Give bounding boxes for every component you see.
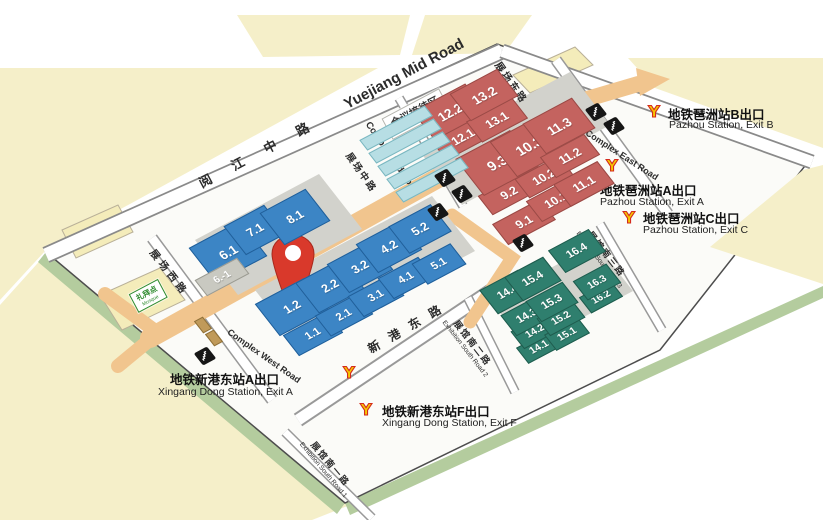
metro-exit-pazhou-a-en: Pazhou Station, Exit A — [600, 196, 704, 208]
pazhou-complex-map: 阅 江 中 路 Yuejiang Mid Road 展场西路 Complex W… — [0, 0, 823, 520]
metro-exit-xingang-a-en: Xingang Dong Station, Exit A — [158, 386, 293, 398]
metro-exit-pazhou-b-en: Pazhou Station, Exit B — [669, 119, 773, 131]
guangzhou-metro-logo-icon: Y — [646, 103, 662, 121]
metro-exit-pazhou-c-en: Pazhou Station, Exit C — [643, 224, 748, 236]
guangzhou-metro-logo-icon: Y — [621, 209, 637, 227]
guangzhou-metro-logo-icon: Y — [341, 364, 357, 382]
guangzhou-metro-logo-icon: Y — [358, 401, 374, 419]
metro-exit-xingang-f-en: Xingang Dong Station, Exit F — [382, 417, 517, 429]
